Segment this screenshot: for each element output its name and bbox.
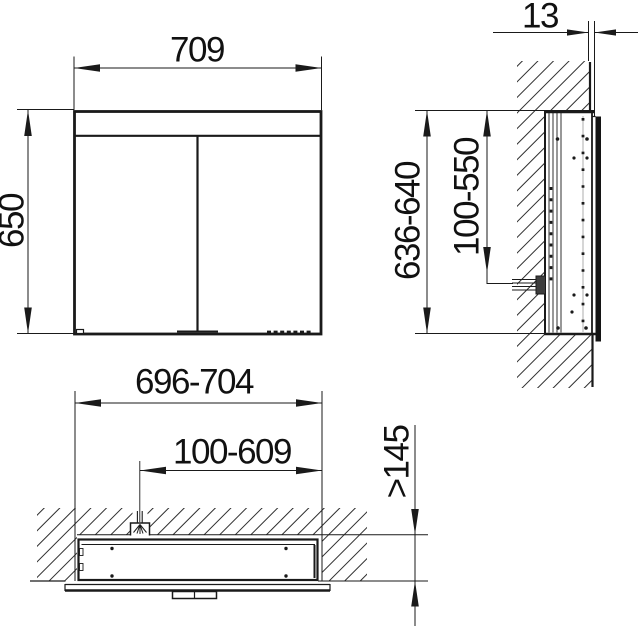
arrow-up-icon (24, 110, 32, 136)
recess-depth-label: >145 (380, 426, 415, 499)
mirror-door-section (596, 117, 602, 342)
hinge-plate (80, 549, 84, 556)
bottom-left-fitting (77, 330, 84, 334)
arrow-right-icon (296, 399, 322, 407)
mirror-door-plan (65, 584, 330, 599)
cabinet-plan (79, 540, 318, 581)
hinge-plate (80, 564, 84, 571)
arrow-right-icon (296, 64, 322, 72)
arrow-left-icon (75, 399, 101, 407)
connection-height-dimension (483, 111, 513, 285)
side-height-label: 636-640 (391, 162, 426, 280)
arrow-down-icon (24, 308, 32, 334)
arrow-up-icon (483, 111, 491, 137)
arrow-down-icon (423, 308, 431, 334)
arrow-left-icon (140, 467, 166, 475)
arrow-left-icon (595, 29, 617, 35)
arrow-down-icon (411, 509, 419, 535)
front-height-label: 650 (0, 194, 30, 248)
connection-range-label: 100-609 (173, 435, 291, 470)
arrow-up-icon (423, 111, 431, 137)
recess-width-label: 696-704 (135, 365, 253, 400)
arrow-left-icon (74, 64, 100, 72)
arrow-right-icon (296, 467, 322, 475)
front-width-label: 709 (170, 33, 224, 68)
cabinet-section (544, 111, 601, 342)
plan-view (30, 391, 428, 626)
technical-drawing-canvas (0, 0, 640, 626)
arrow-right-icon (567, 29, 589, 35)
connection-height-label: 100-550 (450, 138, 485, 256)
installation-drawing: 709 650 13 636-640 100-550 696-704 100-6… (0, 0, 640, 626)
arrow-up-icon (411, 581, 419, 607)
front-view (17, 57, 322, 335)
protrusion-label: 13 (522, 0, 558, 34)
